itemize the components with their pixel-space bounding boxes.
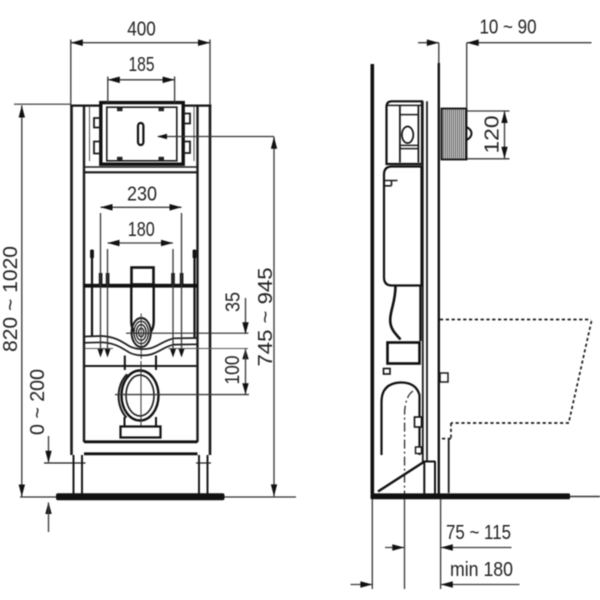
svg-text:180: 180	[128, 219, 155, 241]
svg-text:400: 400	[127, 19, 156, 41]
svg-text:75 ~ 115: 75 ~ 115	[446, 522, 511, 544]
svg-text:120: 120	[482, 116, 504, 154]
svg-text:820 ~ 1020: 820 ~ 1020	[0, 246, 22, 352]
svg-text:100: 100	[222, 356, 244, 385]
svg-text:0 ~ 200: 0 ~ 200	[27, 369, 49, 435]
svg-text:185: 185	[129, 54, 155, 76]
svg-text:745 ~ 945: 745 ~ 945	[255, 268, 277, 367]
svg-text:230: 230	[127, 184, 157, 206]
svg-text:10 ~ 90: 10 ~ 90	[480, 17, 537, 39]
svg-text:35: 35	[223, 292, 245, 312]
svg-text:min 180: min 180	[450, 559, 513, 581]
